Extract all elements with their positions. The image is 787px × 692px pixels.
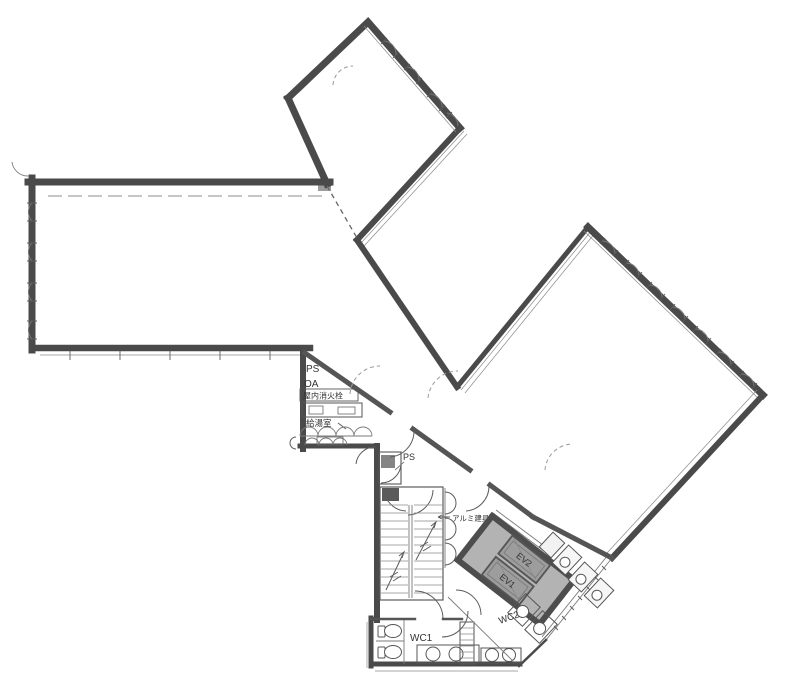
label-oa: OA (304, 379, 319, 390)
exterior-bump-arc (290, 437, 296, 449)
sink-icon (481, 648, 521, 663)
door-swing-icon (466, 486, 489, 511)
scan-smudges (298, 35, 646, 285)
module-ticks (27, 38, 757, 630)
stairwell (380, 487, 456, 600)
label-ps-upper: PS (306, 364, 320, 375)
door-swing-icon (415, 591, 443, 619)
toilet-icon (378, 646, 402, 659)
folding-door-leaves (445, 488, 456, 568)
wc1-area: WC1 (371, 619, 521, 664)
window-arcs (12, 38, 757, 630)
label-wc1: WC1 (410, 633, 433, 644)
floor-plan-page: PS OA 屋内消火栓 給湯室 PS (0, 0, 787, 692)
elevator-block: EV2 EV1 (458, 516, 574, 624)
floor-plan-svg: PS OA 屋内消火栓 給湯室 PS (0, 0, 787, 692)
door-swing-icon (442, 611, 468, 637)
sink-icon (417, 645, 479, 663)
door-swing-icon (356, 447, 375, 464)
dashed-arcs (333, 66, 573, 470)
label-ps-stair: PS (403, 452, 415, 462)
duct-shaft (460, 622, 474, 664)
label-kitchenette: 給湯室 (306, 418, 332, 428)
north-wing (288, 22, 467, 246)
hydrant-cabinet (302, 403, 362, 417)
door-swing-icon (456, 590, 481, 615)
up-arrow (386, 552, 404, 590)
sink-icon (300, 427, 372, 445)
stair-icon (381, 505, 443, 598)
toilet-icon (378, 625, 402, 638)
up-arrow (416, 522, 436, 560)
west-wing (28, 178, 330, 355)
ps-shaft-stair: PS (379, 452, 415, 484)
label-wc2: WC2 (497, 609, 521, 627)
open-boundary-dashed (327, 186, 357, 238)
label-fire-hydrant: 屋内消火栓 (303, 391, 343, 401)
